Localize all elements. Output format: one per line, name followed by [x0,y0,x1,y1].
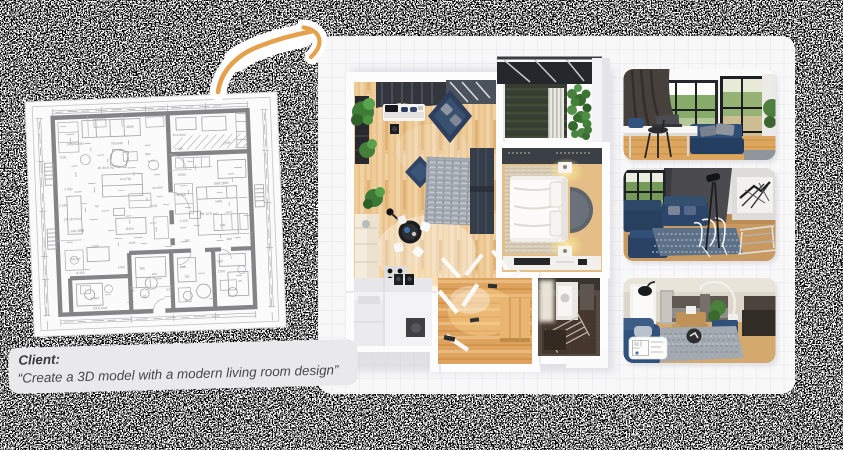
svg-text:dh: dh [130,289,134,293]
svg-text:1800: 1800 [126,125,134,129]
svg-text:WC: WC [140,266,146,270]
svg-text:Client:: Client: [18,352,60,368]
svg-text:350: 350 [185,239,191,243]
svg-text:3 640: 3 640 [59,203,67,207]
svg-text:760x540: 760x540 [111,141,124,145]
svg-text:600: 600 [220,223,226,227]
svg-text:bed 1600: bed 1600 [214,181,228,186]
svg-text:S=4.1m2: S=4.1m2 [172,133,186,138]
svg-text:450: 450 [233,151,239,155]
svg-text:1200: 1200 [59,155,66,159]
svg-text:2400: 2400 [177,173,186,177]
svg-text:tbl: tbl [95,204,99,208]
svg-text:wc: wc [238,279,242,283]
svg-text:kit 8.2: kit 8.2 [71,257,80,261]
svg-text:2 450: 2 450 [64,187,72,191]
svg-text:1500: 1500 [218,269,225,273]
svg-text:w=900: w=900 [177,193,187,197]
svg-text:sofa 2200: sofa 2200 [70,229,84,234]
svg-text:st 450: st 450 [76,271,85,275]
svg-text:LR 18.4 m2: LR 18.4 m2 [64,217,82,222]
svg-text:900: 900 [227,237,233,241]
svg-text:hall: hall [217,259,223,263]
svg-text:wm: wm [152,272,157,276]
svg-text:1400: 1400 [215,199,222,203]
svg-text:1 050: 1 050 [175,147,183,151]
svg-text:2100: 2100 [222,141,231,145]
svg-text:fr 600: fr 600 [91,296,100,300]
svg-text:1 800: 1 800 [91,244,99,248]
svg-text:1200: 1200 [118,265,125,269]
svg-text:1 100: 1 100 [149,204,157,208]
svg-text:H=2700: H=2700 [120,177,132,181]
svg-text:BR 12.8 m2: BR 12.8 m2 [200,211,218,216]
svg-text:bath: bath [180,265,187,269]
svg-text:b170: b170 [166,287,173,291]
svg-text:2 100: 2 100 [180,219,188,223]
svg-text:R450: R450 [126,227,134,231]
svg-text:900: 900 [145,152,151,156]
svg-text:dw 600: dw 600 [152,186,163,190]
svg-text:03 6.4m2: 03 6.4m2 [93,306,107,311]
svg-text:ch45: ch45 [129,241,136,245]
svg-text:700: 700 [184,275,190,279]
svg-text:lm 34.6 m2: lm 34.6 m2 [98,166,115,171]
